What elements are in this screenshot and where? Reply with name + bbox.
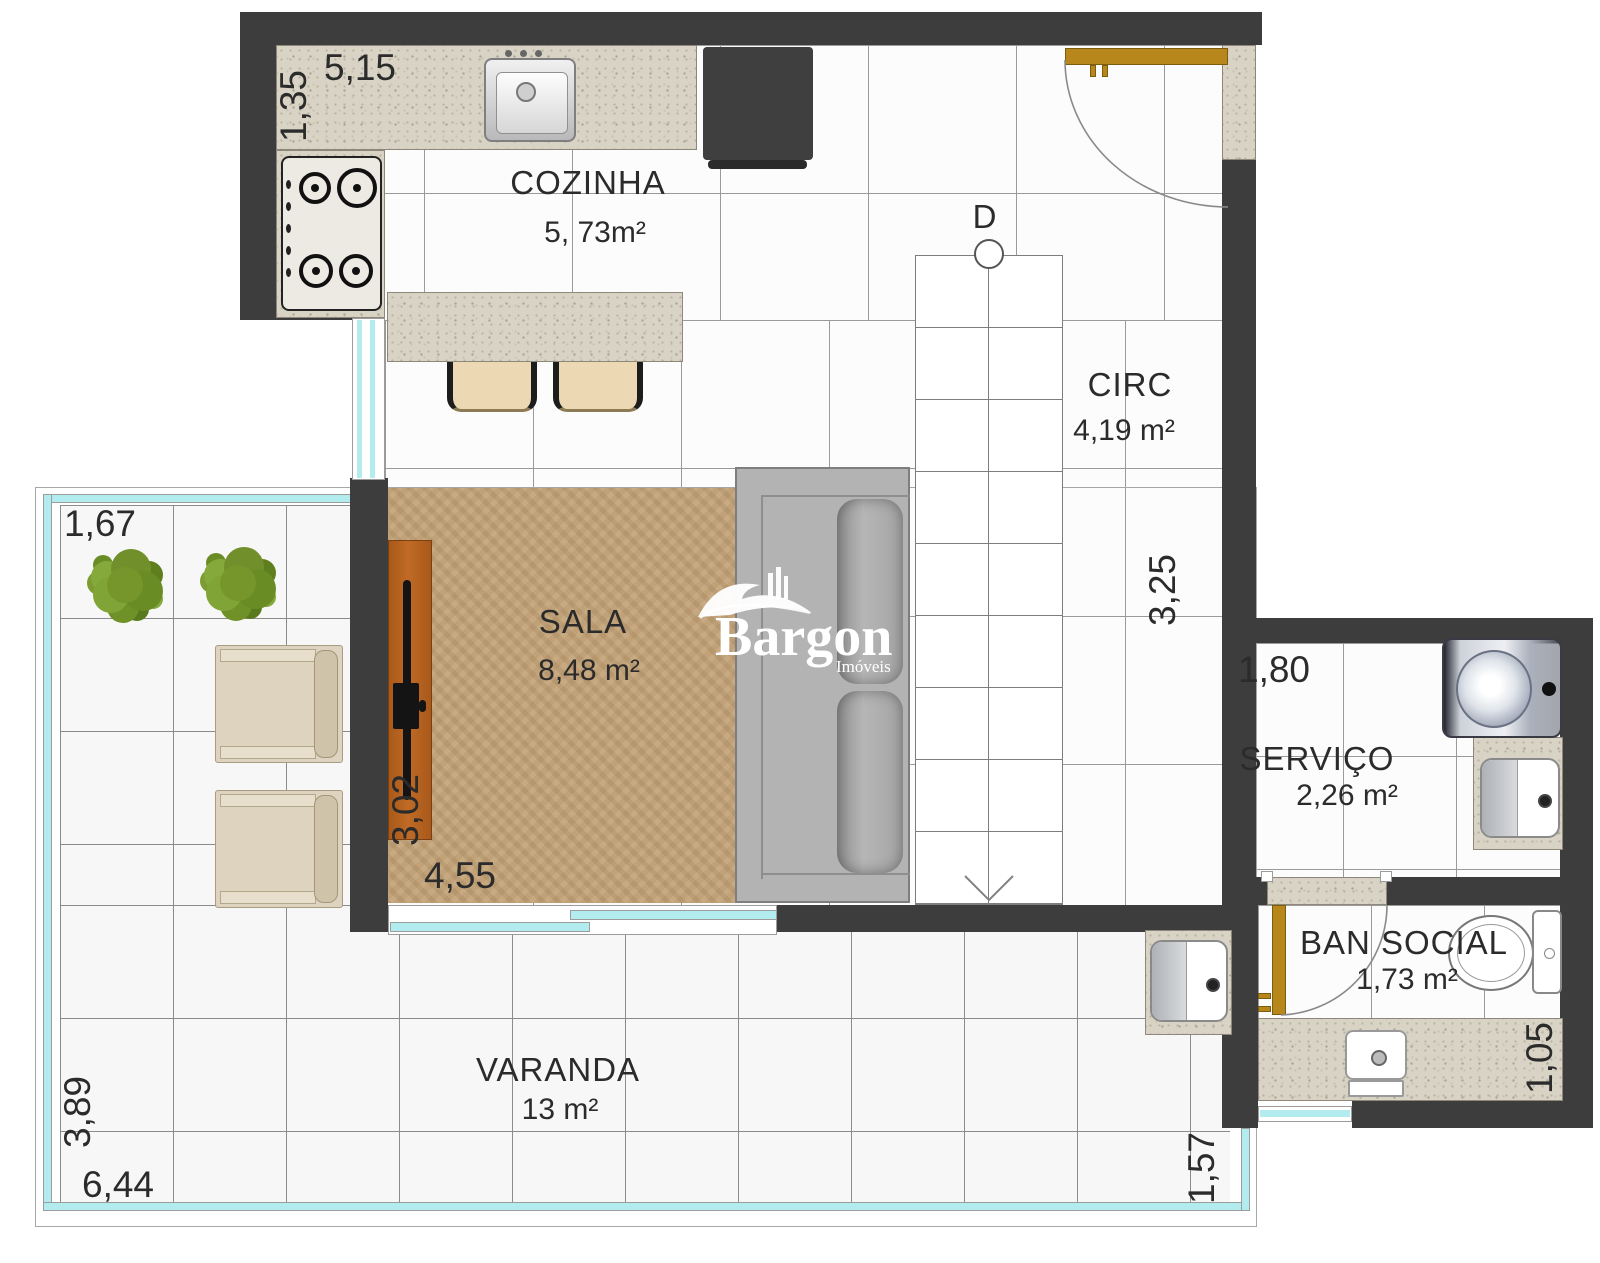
- railing-bottom: [43, 1202, 1250, 1211]
- dim-kitchen-left: 1,35: [273, 70, 315, 142]
- floor-plan: COZINHA 5, 73m² CIRC 4,19 m² SALA 8,48 m…: [0, 0, 1600, 1263]
- ban-door-sill: [1267, 877, 1387, 905]
- tv-nub-icon: [419, 700, 426, 712]
- room-area-circ: 4,19 m²: [1073, 414, 1175, 448]
- kitchen-sink-basin: [496, 72, 568, 134]
- tv-base-icon: [393, 683, 419, 729]
- room-area-sala: 8,48 m²: [538, 654, 640, 688]
- staircase-center-line: [988, 255, 989, 905]
- kitchen-sink-icon: [484, 58, 576, 142]
- railing-top: [43, 494, 352, 503]
- drain-icon: [1206, 978, 1220, 992]
- stove-knob-icon: [286, 268, 291, 277]
- ban-door-handle: [1258, 1006, 1271, 1012]
- sofa-cushion: [837, 691, 903, 873]
- stair-datum-label: D: [973, 198, 998, 236]
- fridge-base: [708, 160, 807, 169]
- burner-icon: [299, 254, 333, 288]
- plant-icon: [220, 565, 256, 601]
- sala-rug: [385, 488, 735, 903]
- stove-icon: [281, 156, 382, 311]
- armchair-arm: [220, 649, 316, 662]
- stove-knob-icon: [286, 180, 291, 189]
- kitchen-island: [387, 292, 683, 362]
- wall-ban-bottom: [1352, 1101, 1593, 1128]
- island-stool: [553, 362, 643, 412]
- dim-balcony-top: 1,67: [64, 503, 136, 545]
- room-label-servico: SERVIÇO: [1240, 740, 1395, 778]
- faucet-knob-icon: [520, 50, 527, 57]
- room-area-cozinha: 5, 73m²: [544, 216, 646, 250]
- burner-icon: [299, 172, 331, 204]
- washer-drum: [1456, 650, 1532, 728]
- sofa-armrest-top: [761, 495, 910, 497]
- wall-kitchen-left: [240, 45, 276, 320]
- entry-door-swing-arc: [1065, 60, 1228, 207]
- dim-sala-left: 3,02: [385, 774, 427, 846]
- armchair-arm: [220, 746, 316, 759]
- stair-datum-circle: [974, 239, 1004, 269]
- varanda-sink-icon: [1150, 940, 1228, 1022]
- washer-knob-icon: [1542, 682, 1556, 696]
- plant-icon: [107, 567, 143, 603]
- sofa: [735, 467, 910, 903]
- faucet-knob-icon: [535, 50, 542, 57]
- toilet-tank: [1532, 910, 1562, 994]
- ban-sink-icon: [1345, 1030, 1407, 1080]
- stove-knob-icon: [286, 202, 291, 211]
- stove-knob-icon: [286, 224, 291, 233]
- room-label-cozinha: COZINHA: [510, 164, 666, 202]
- door-jamb-mark: [1380, 871, 1392, 882]
- wall-sala-left: [350, 478, 388, 932]
- wall-sala-bottom: [777, 905, 1256, 932]
- drain-icon: [1538, 794, 1552, 808]
- armchair: [215, 645, 343, 763]
- sala-sliding-panel: [570, 910, 777, 920]
- laundry-washboard: [1482, 760, 1518, 836]
- stair-down-arrow-icon: [963, 874, 1015, 904]
- sala-sliding-panel: [390, 922, 590, 932]
- dim-balcony-bottom: 6,44: [82, 1164, 154, 1206]
- kitchen-side-window-glass: [357, 320, 362, 478]
- staircase: [915, 255, 1063, 905]
- room-label-sala: SALA: [539, 603, 627, 641]
- room-label-ban-social: BAN SOCIAL: [1300, 924, 1508, 962]
- room-label-circ: CIRC: [1088, 366, 1173, 404]
- brand-subtitle: Imóveis: [836, 657, 891, 676]
- dim-servico-top: 1,80: [1238, 649, 1310, 691]
- fridge-icon: [703, 47, 813, 160]
- ban-vanity-counter: [1258, 1018, 1563, 1101]
- faucet-knob-icon: [505, 50, 512, 57]
- brand-watermark: Bargon Imóveis: [660, 555, 920, 680]
- burner-icon: [339, 254, 373, 288]
- laundry-tub-icon: [1480, 758, 1560, 838]
- armchair: [215, 790, 343, 908]
- armchair-back: [314, 650, 338, 758]
- wall-top: [240, 12, 1262, 45]
- washing-machine-icon: [1442, 638, 1562, 738]
- sofa-armrest-bottom: [761, 873, 910, 875]
- room-label-varanda: VARANDA: [476, 1051, 640, 1089]
- room-area-varanda: 13 m²: [522, 1093, 599, 1127]
- room-area-ban-social: 1,73 m²: [1356, 963, 1458, 997]
- drain-icon: [1371, 1050, 1387, 1066]
- room-area-servico: 2,26 m²: [1296, 779, 1398, 813]
- dim-kitchen-top: 5,15: [324, 47, 396, 89]
- burner-icon: [337, 168, 377, 208]
- dim-circ-right: 3,25: [1142, 554, 1184, 626]
- island-stool: [447, 362, 537, 412]
- stove-knob-icon: [286, 246, 291, 255]
- kitchen-side-window-glass: [370, 320, 375, 478]
- dim-balcony-right: 1,57: [1181, 1132, 1223, 1204]
- dim-balcony-left: 3,89: [57, 1076, 99, 1148]
- flush-icon: [1544, 948, 1555, 959]
- brand-logo-icon: Bargon Imóveis: [660, 555, 920, 680]
- armchair-back: [314, 795, 338, 903]
- door-jamb-mark: [1261, 871, 1273, 882]
- ban-door-handle: [1258, 993, 1271, 999]
- ban-sink-ledge: [1348, 1080, 1404, 1097]
- dim-sala-bottom: 4,55: [424, 855, 496, 897]
- railing-left: [43, 494, 52, 1211]
- armchair-arm: [220, 891, 316, 904]
- varanda-sink-board: [1152, 942, 1187, 1020]
- wall-servico-right: [1560, 643, 1593, 1128]
- faucet-icon: [516, 82, 536, 102]
- armchair-arm: [220, 794, 316, 807]
- sofa-seat-line: [761, 495, 763, 879]
- ban-bottom-window-glass: [1260, 1110, 1350, 1117]
- railing-right: [1241, 1128, 1250, 1211]
- dim-ban-right: 1,05: [1519, 1022, 1561, 1094]
